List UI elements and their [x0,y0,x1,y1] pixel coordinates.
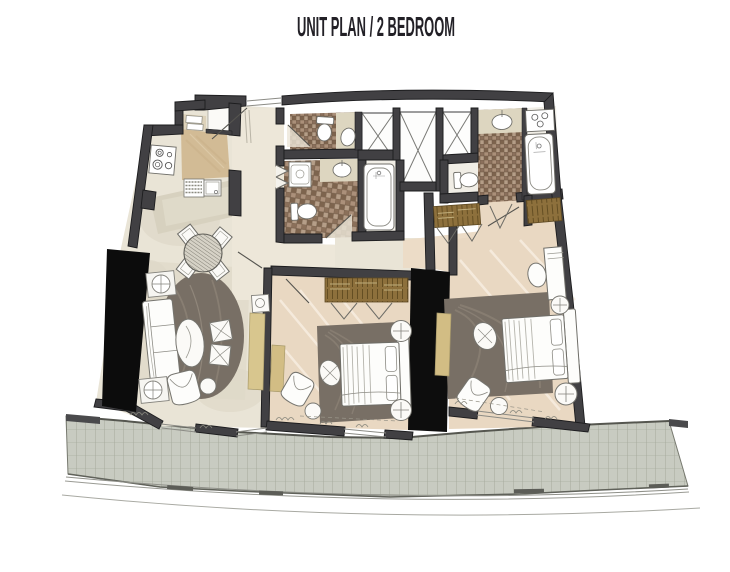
svg-text:UNIT PLAN / 2 BEDROOM: UNIT PLAN / 2 BEDROOM [297,11,455,43]
